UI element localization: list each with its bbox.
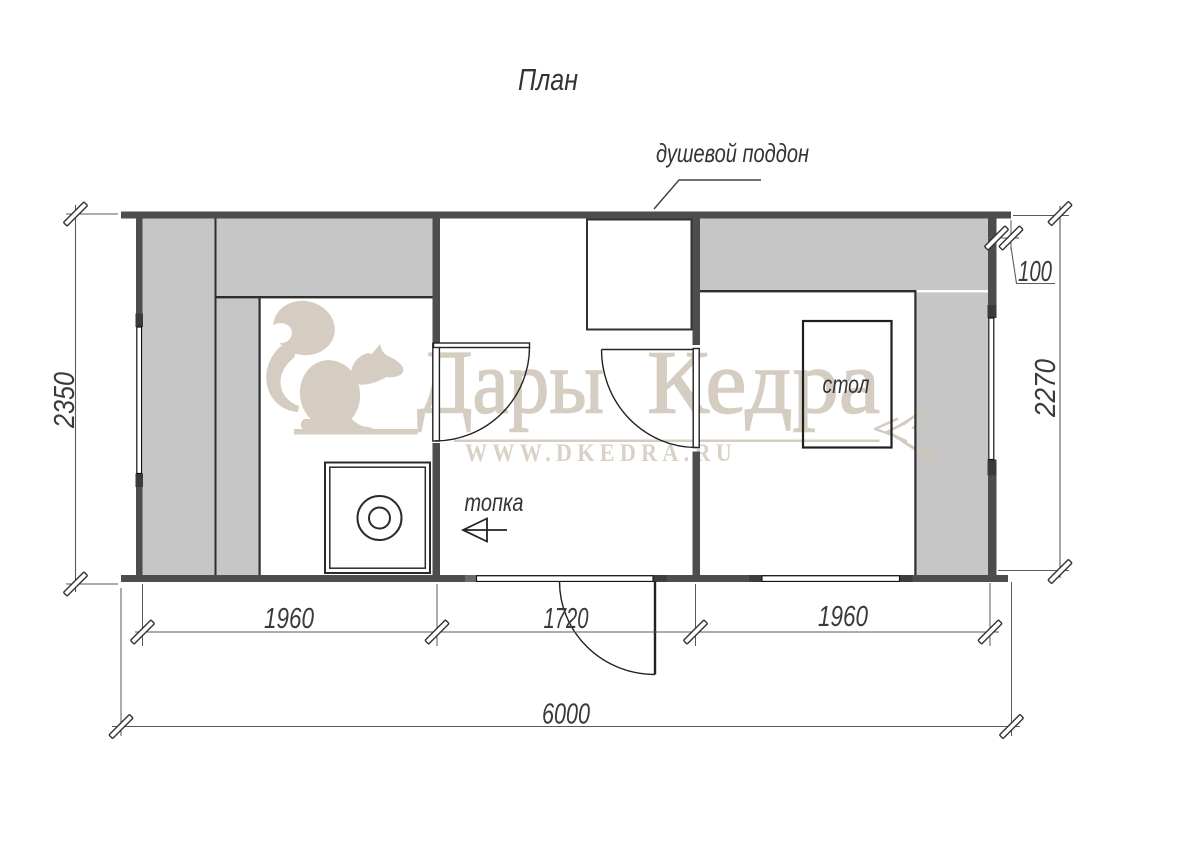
svg-text:1960: 1960 (818, 601, 868, 633)
svg-text:2350: 2350 (49, 372, 81, 429)
svg-text:6000: 6000 (542, 699, 590, 731)
svg-text:1720: 1720 (544, 603, 589, 635)
svg-text:душевой поддон: душевой поддон (656, 138, 809, 168)
svg-text:2270: 2270 (1030, 359, 1062, 418)
svg-text:топка: топка (465, 489, 524, 517)
svg-text:стол: стол (823, 371, 870, 399)
svg-text:1960: 1960 (264, 603, 314, 635)
svg-text:100: 100 (1018, 256, 1052, 288)
svg-text:План: План (518, 62, 578, 97)
svg-text:Дары: Дары (417, 334, 604, 433)
